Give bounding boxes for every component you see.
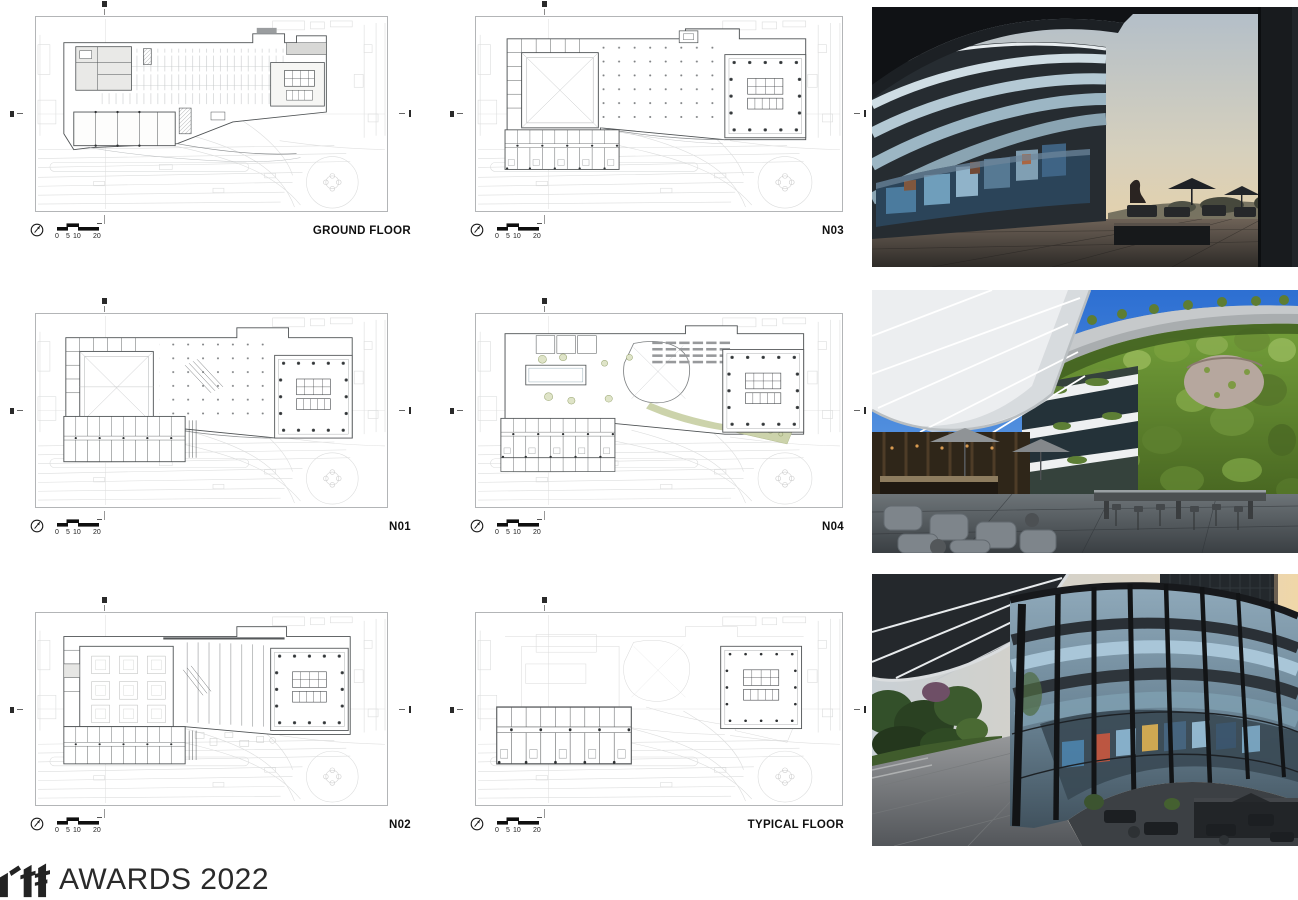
scale-tick: 20 [533,529,541,536]
rtf-logo-icon [0,861,50,899]
gridline-marker-left [10,707,14,713]
scale-tick: 20 [533,827,541,834]
scale-tick: 5 [506,827,510,834]
scale-tick: 10 [513,827,521,834]
award-title: AWARDS 2022 [59,863,269,897]
plan-label: N04 [822,521,844,533]
gridline-marker-left [450,408,454,414]
plan-n01: 0 5 10 20 N01 [35,313,388,508]
gridline-marker-top [102,597,107,603]
photo-plaza-dusk [872,7,1298,267]
north-arrow-icon [30,519,44,533]
scale-tick: 20 [533,233,541,240]
scale-tick: 5 [506,233,510,240]
plan-drawing-n03 [475,16,843,212]
scale-tick: 5 [66,233,70,240]
scale-tick: 0 [495,233,499,240]
scale-tick: 20 [93,233,101,240]
plan-label: N01 [389,521,411,533]
scale-bar: 0 5 10 20 [57,817,103,839]
gridline-marker-left [10,111,14,117]
gridline-marker-right [399,709,405,710]
north-arrow-icon [470,519,484,533]
plan-drawing-typical-floor [475,612,843,806]
scale-tick: 5 [66,529,70,536]
scale-tick: 5 [66,827,70,834]
plan-typical-floor: 0 5 10 20 TYPICAL FLOOR [475,612,843,806]
photo-curtain-wall-sunset [872,574,1298,846]
board-footer: AWARDS 2022 [0,859,269,900]
scale-tick: 20 [93,827,101,834]
gridline-marker-left [450,111,454,117]
gridline-marker-top [102,298,107,304]
gridline-marker-right [854,410,860,411]
scale-bar: 0 5 10 20 [57,519,103,541]
scale-tick: 0 [495,827,499,834]
gridline-marker-right [854,113,860,114]
gridline-marker-top [102,1,107,7]
photo-green-wall-terrace [872,290,1298,553]
plan-label: GROUND FLOOR [313,225,411,237]
plan-ground-floor: 0 5 10 20 GROUND FLOOR [35,16,388,212]
scale-tick: 10 [73,233,81,240]
scale-tick: 20 [93,529,101,536]
scale-tick: 0 [55,827,59,834]
scale-bar: 0 5 10 20 [497,817,543,839]
scale-tick: 10 [513,233,521,240]
scale-bar: 0 5 10 20 [497,519,543,541]
gridline-marker-top [542,298,547,304]
scale-bar: 0 5 10 20 [57,223,103,245]
gridline-marker-top [542,597,547,603]
gridline-marker-top [542,1,547,7]
scale-bar: 0 5 10 20 [497,223,543,245]
plan-n03: 0 5 10 20 N03 [475,16,843,212]
north-arrow-icon [30,817,44,831]
plan-drawing-ground-floor [35,16,388,212]
plan-drawing-n01 [35,313,388,508]
presentation-board: { "plans": [ {"id": "ground-floor", "lab… [0,0,1298,900]
plan-drawing-n04 [475,313,843,508]
scale-tick: 10 [513,529,521,536]
gridline-marker-right [854,709,860,710]
gridline-marker-left [10,408,14,414]
plan-label: N02 [389,819,411,831]
plan-drawing-n02 [35,612,388,806]
plan-n04: 0 5 10 20 N04 [475,313,843,508]
gridline-marker-right [399,410,405,411]
north-arrow-icon [470,817,484,831]
scale-tick: 0 [495,529,499,536]
scale-tick: 10 [73,827,81,834]
north-arrow-icon [30,223,44,237]
gridline-marker-right [399,113,405,114]
gridline-marker-left [450,707,454,713]
plan-n02: 0 5 10 20 N02 [35,612,388,806]
scale-tick: 10 [73,529,81,536]
plan-label: N03 [822,225,844,237]
scale-tick: 0 [55,233,59,240]
scale-tick: 5 [506,529,510,536]
scale-tick: 0 [55,529,59,536]
plan-label: TYPICAL FLOOR [748,819,844,831]
north-arrow-icon [470,223,484,237]
